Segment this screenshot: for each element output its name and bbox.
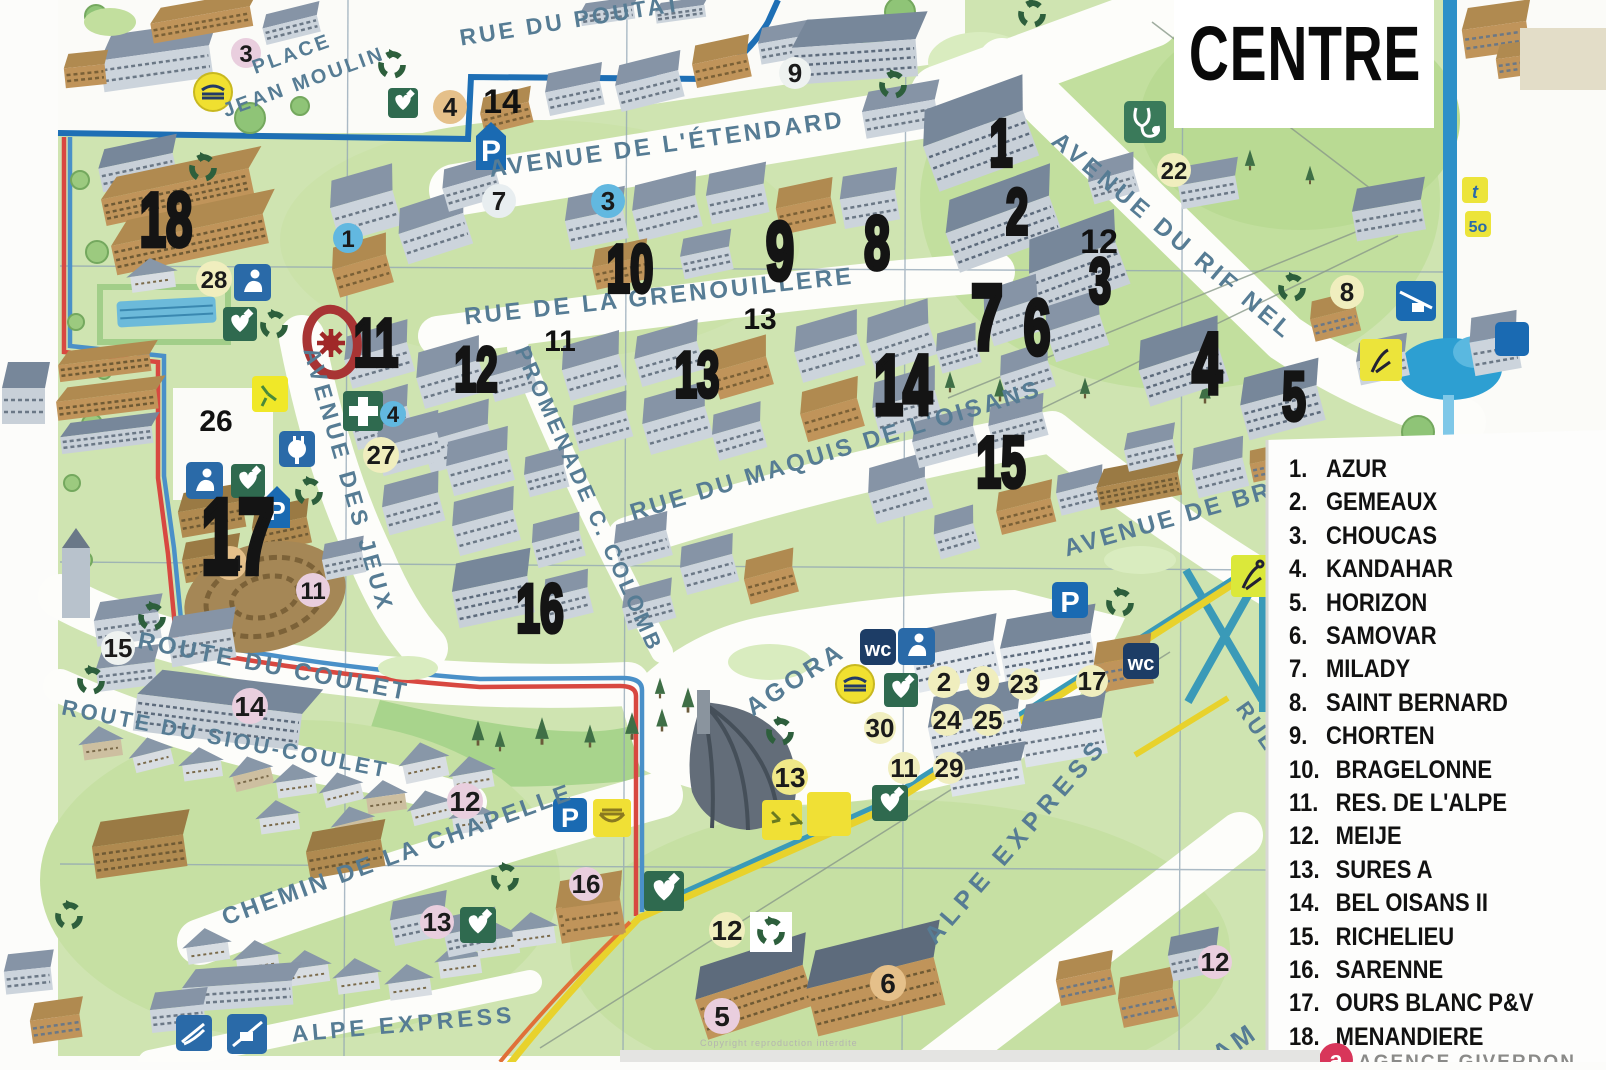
svg-text:11: 11 xyxy=(544,325,576,358)
svg-text:16.: 16. xyxy=(1289,956,1320,984)
svg-text:13: 13 xyxy=(774,762,805,793)
svg-text:3.: 3. xyxy=(1289,522,1307,550)
svg-text:AZUR: AZUR xyxy=(1326,455,1387,483)
svg-text:CHOUCAS: CHOUCAS xyxy=(1326,522,1437,550)
svg-text:7: 7 xyxy=(971,267,1003,369)
svg-text:wc: wc xyxy=(1127,653,1155,675)
svg-text:1.: 1. xyxy=(1289,455,1307,483)
svg-text:11: 11 xyxy=(300,578,325,605)
svg-text:MILADY: MILADY xyxy=(1326,655,1411,683)
svg-text:3: 3 xyxy=(601,186,615,216)
svg-text:6: 6 xyxy=(1024,283,1051,371)
svg-text:CENTRE: CENTRE xyxy=(1189,11,1421,97)
svg-text:P: P xyxy=(1060,587,1079,619)
svg-text:6: 6 xyxy=(880,968,896,999)
svg-text:9: 9 xyxy=(976,667,990,697)
svg-text:1: 1 xyxy=(989,106,1012,181)
svg-text:KANDAHAR: KANDAHAR xyxy=(1326,555,1453,583)
svg-text:24: 24 xyxy=(933,705,962,735)
svg-text:26: 26 xyxy=(199,405,232,438)
svg-text:5o: 5o xyxy=(1469,219,1488,236)
svg-text:12: 12 xyxy=(454,336,497,406)
svg-text:5: 5 xyxy=(1282,359,1306,436)
svg-text:4: 4 xyxy=(443,92,458,122)
svg-text:RES. DE L'ALPE: RES. DE L'ALPE xyxy=(1336,789,1507,817)
svg-text:11: 11 xyxy=(890,753,918,783)
svg-text:13: 13 xyxy=(675,339,720,411)
svg-text:18.: 18. xyxy=(1289,1023,1320,1051)
svg-text:13: 13 xyxy=(423,907,452,937)
svg-text:11.: 11. xyxy=(1289,789,1318,817)
svg-text:SURES A: SURES A xyxy=(1336,856,1433,884)
svg-text:11: 11 xyxy=(354,305,399,381)
svg-text:3: 3 xyxy=(1089,247,1111,318)
svg-text:SAMOVAR: SAMOVAR xyxy=(1326,622,1437,650)
svg-text:SARENNE: SARENNE xyxy=(1336,956,1443,984)
svg-text:6.: 6. xyxy=(1289,622,1307,650)
svg-text:MEIJE: MEIJE xyxy=(1336,822,1402,850)
svg-text:14: 14 xyxy=(874,338,932,432)
svg-text:30: 30 xyxy=(866,713,895,743)
svg-text:12: 12 xyxy=(711,915,742,946)
svg-text:14: 14 xyxy=(483,83,521,121)
svg-text:22: 22 xyxy=(1161,158,1188,185)
svg-text:HORIZON: HORIZON xyxy=(1326,589,1427,617)
svg-text:9: 9 xyxy=(788,58,802,88)
svg-text:17: 17 xyxy=(1078,666,1107,696)
svg-text:27: 27 xyxy=(367,440,396,470)
svg-text:t: t xyxy=(1472,182,1479,202)
svg-text:9: 9 xyxy=(766,206,794,297)
svg-text:8.: 8. xyxy=(1289,689,1307,717)
svg-text:GEMEAUX: GEMEAUX xyxy=(1326,488,1437,516)
svg-text:14: 14 xyxy=(234,691,266,722)
svg-text:8: 8 xyxy=(864,203,890,286)
svg-text:17.: 17. xyxy=(1289,989,1320,1017)
svg-text:16: 16 xyxy=(516,571,564,648)
svg-text:4: 4 xyxy=(387,402,400,427)
svg-text:9.: 9. xyxy=(1289,722,1307,750)
svg-text:13: 13 xyxy=(743,303,776,336)
svg-text:18: 18 xyxy=(140,179,192,263)
svg-text:SAINT BERNARD: SAINT BERNARD xyxy=(1326,689,1508,717)
svg-text:15.: 15. xyxy=(1289,923,1320,951)
svg-text:2: 2 xyxy=(937,667,951,697)
svg-text:CHORTEN: CHORTEN xyxy=(1326,722,1435,750)
svg-text:wc: wc xyxy=(864,639,892,661)
svg-text:23: 23 xyxy=(1010,669,1039,699)
svg-text:10.: 10. xyxy=(1289,756,1320,784)
svg-text:5.: 5. xyxy=(1289,589,1307,617)
svg-text:OURS BLANC P&V: OURS BLANC P&V xyxy=(1336,989,1534,1017)
svg-text:29: 29 xyxy=(935,753,964,783)
svg-text:12: 12 xyxy=(1201,947,1230,977)
svg-text:17: 17 xyxy=(201,477,274,596)
svg-text:4.: 4. xyxy=(1289,555,1307,583)
svg-text:15: 15 xyxy=(976,422,1026,503)
svg-text:14.: 14. xyxy=(1289,889,1320,917)
svg-text:4: 4 xyxy=(1192,316,1222,412)
svg-text:2: 2 xyxy=(1006,176,1028,248)
svg-text:15: 15 xyxy=(104,633,133,663)
svg-text:16: 16 xyxy=(572,869,601,899)
svg-text:13.: 13. xyxy=(1289,856,1320,884)
svg-text:25: 25 xyxy=(974,705,1003,735)
svg-text:BRAGELONNE: BRAGELONNE xyxy=(1336,756,1492,784)
svg-text:7.: 7. xyxy=(1289,655,1307,683)
svg-text:2.: 2. xyxy=(1289,488,1307,516)
svg-text:28: 28 xyxy=(201,267,228,294)
svg-text:12.: 12. xyxy=(1289,822,1320,850)
svg-text:7: 7 xyxy=(492,186,506,216)
svg-text:BEL OISANS II: BEL OISANS II xyxy=(1336,889,1488,917)
svg-text:RICHELIEU: RICHELIEU xyxy=(1336,923,1454,951)
svg-text:8: 8 xyxy=(1340,277,1354,307)
svg-text:1: 1 xyxy=(341,226,354,253)
svg-text:Copyright reproduction interdi: Copyright reproduction interdite xyxy=(700,1038,858,1048)
svg-text:MENANDIERE: MENANDIERE xyxy=(1336,1023,1484,1051)
svg-text:10: 10 xyxy=(607,231,654,307)
svg-text:5: 5 xyxy=(714,1001,730,1032)
